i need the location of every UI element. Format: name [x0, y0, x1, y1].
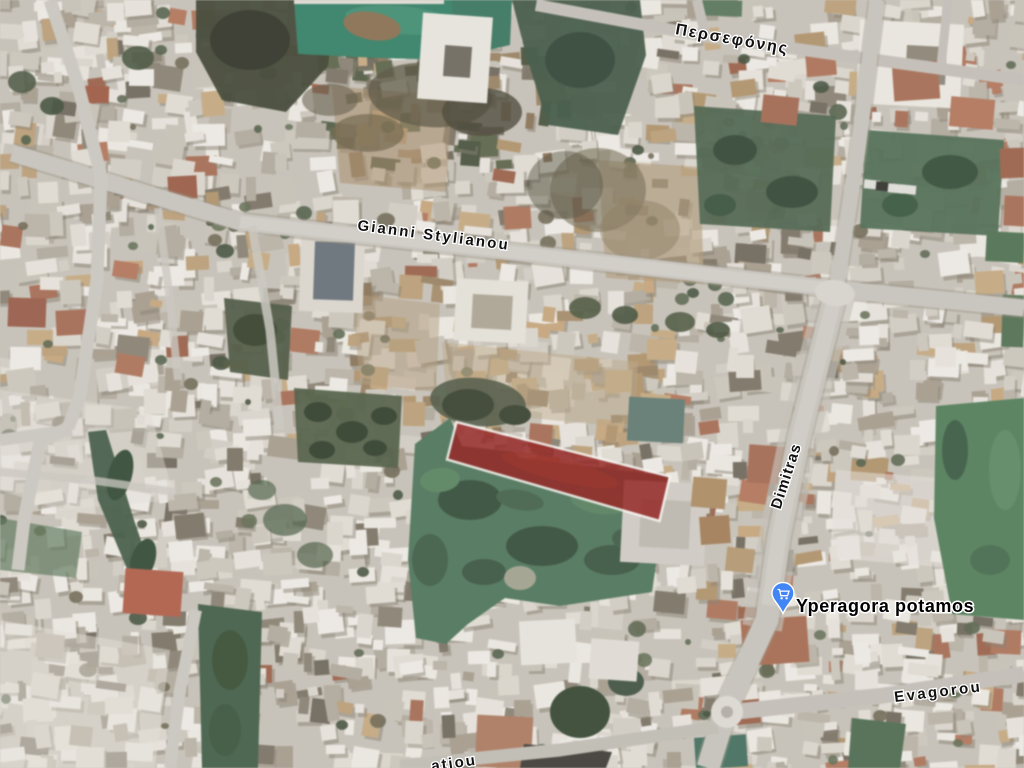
svg-text:Yperagora potamos: Yperagora potamos	[796, 596, 974, 616]
svg-text:Dimitras: Dimitras	[768, 441, 805, 511]
svg-text:Gianni Stylianou: Gianni Stylianou	[356, 217, 510, 254]
svg-text:atiou: atiou	[430, 752, 478, 768]
svg-text:Evagorou: Evagorou	[893, 678, 983, 706]
svg-text:Περσεφόνης: Περσεφόνης	[674, 21, 790, 58]
